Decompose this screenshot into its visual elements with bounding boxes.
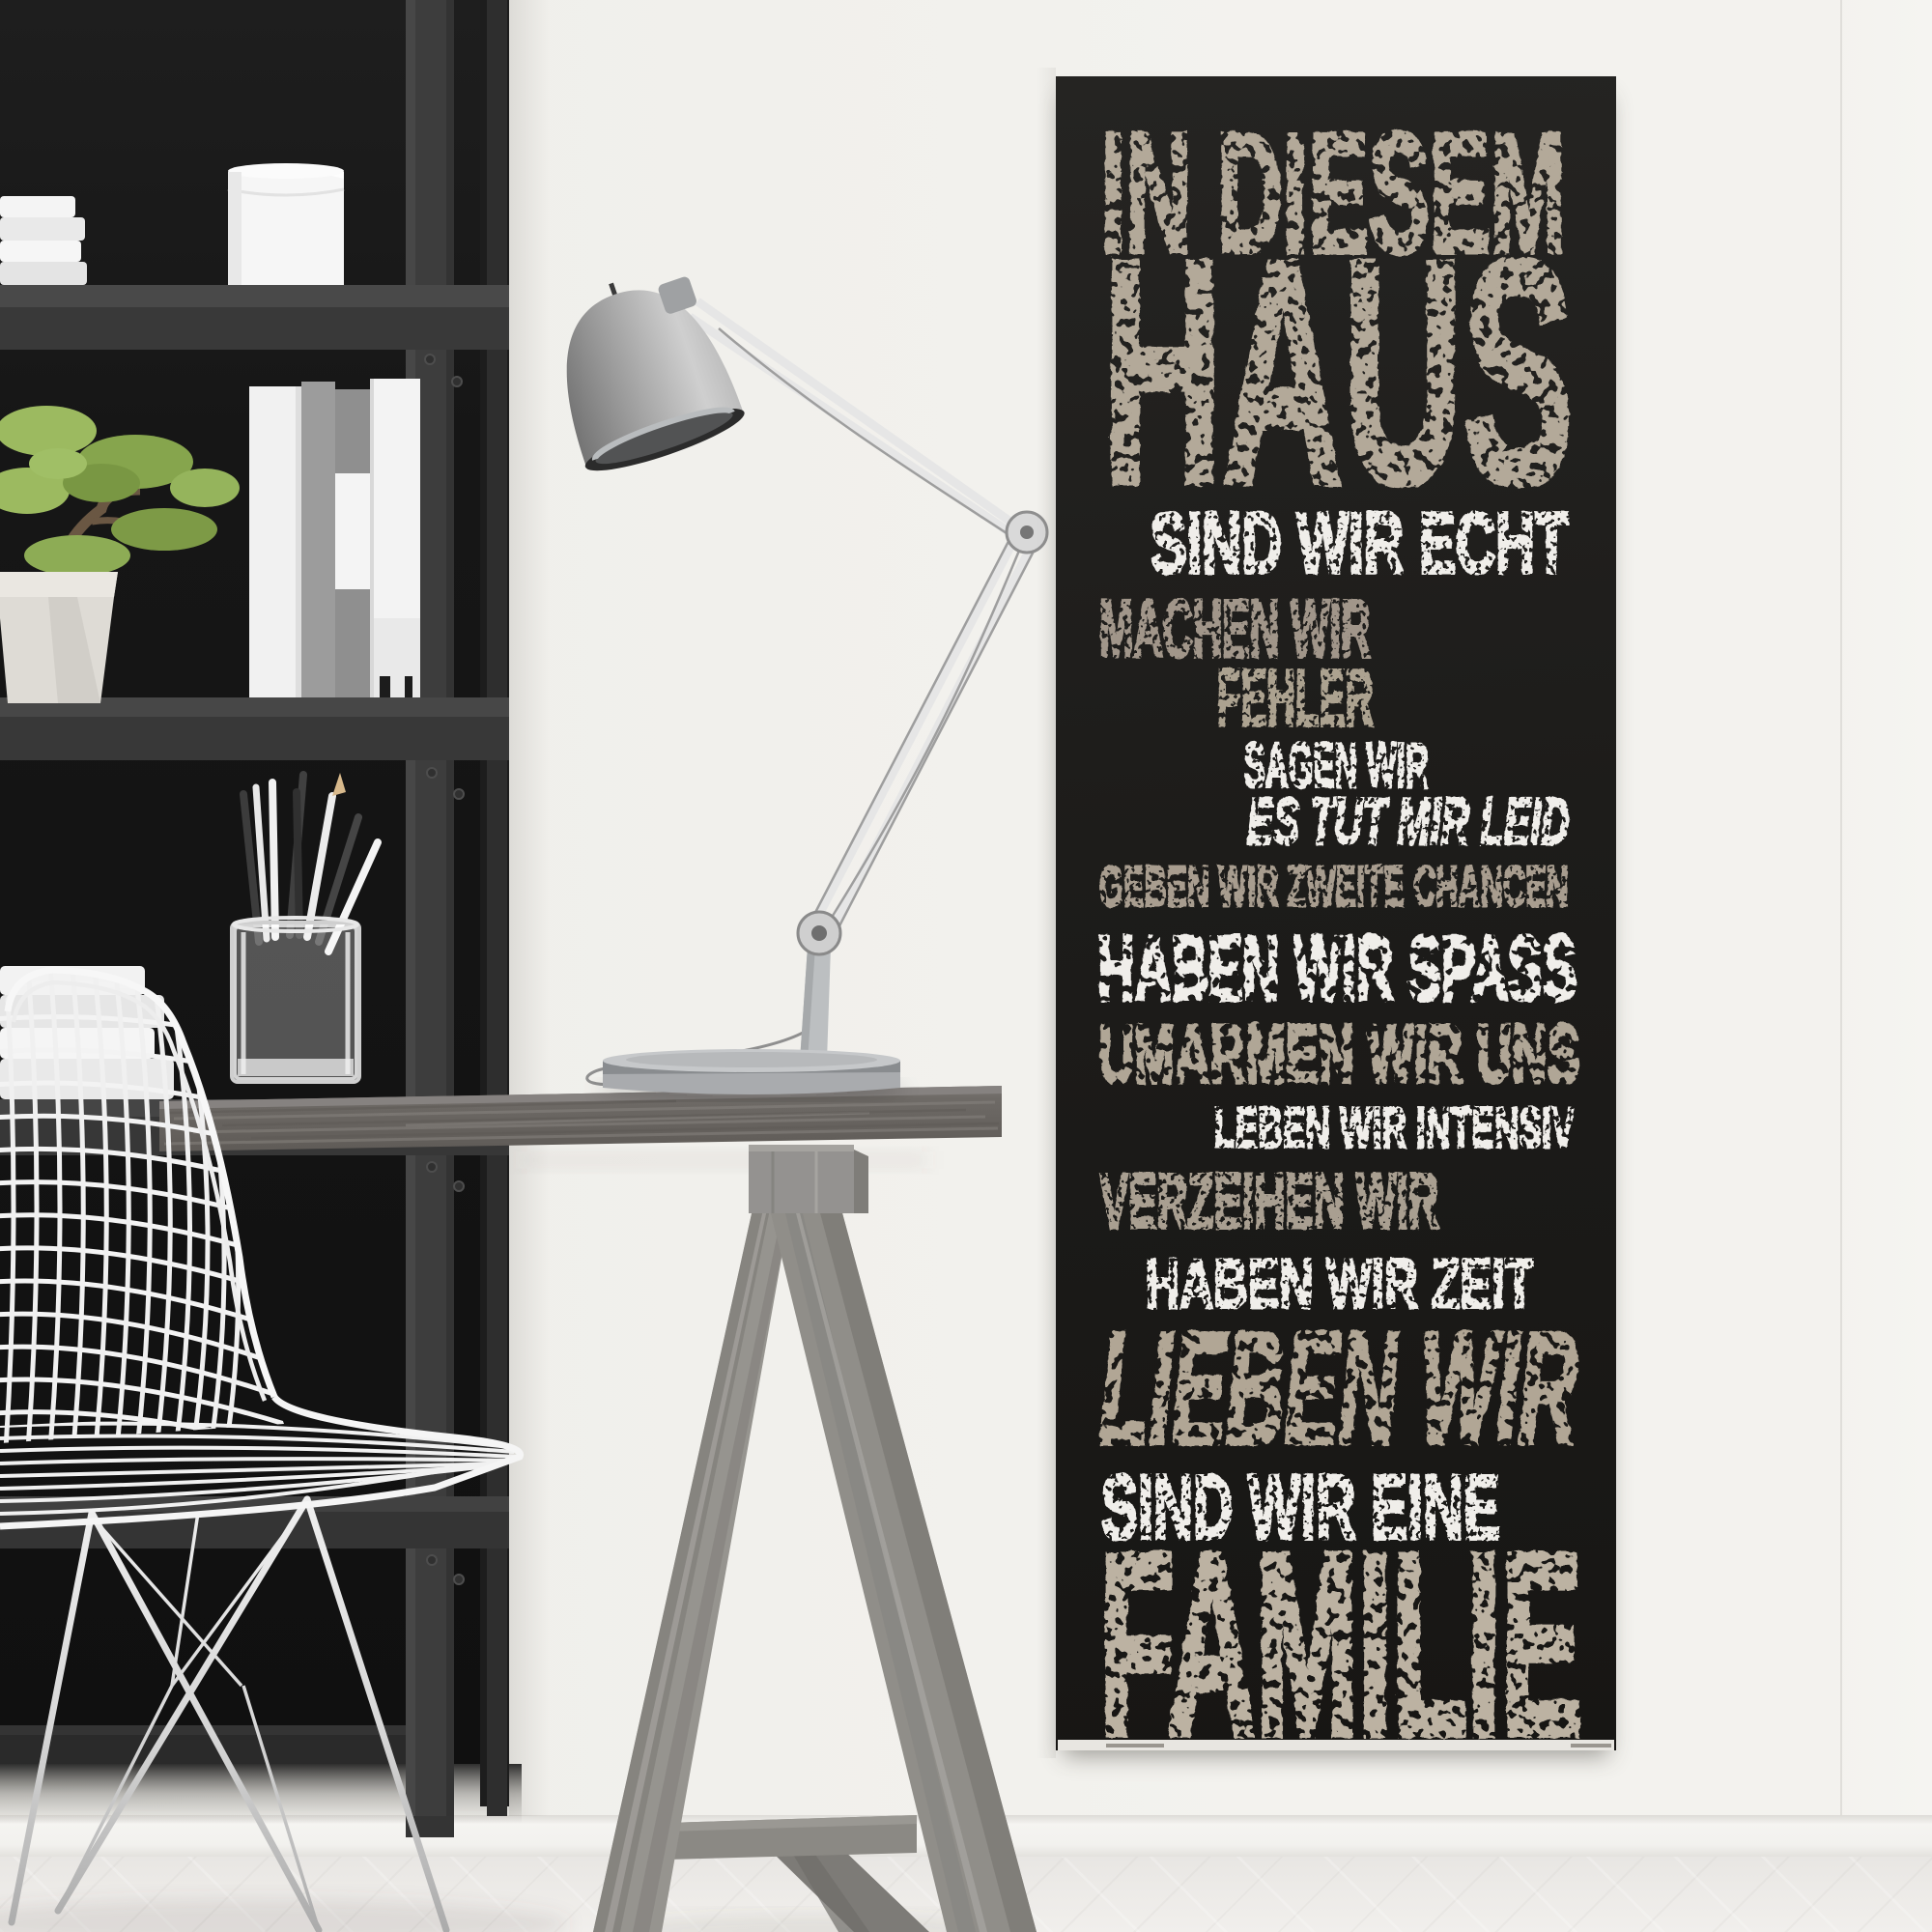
- svg-text:LIEBEN WIR: LIEBEN WIR: [1098, 1298, 1577, 1475]
- svg-text:LEBEN WIR INTENSIV: LEBEN WIR INTENSIV: [1213, 1095, 1574, 1159]
- svg-text:HABEN WIR SPASS: HABEN WIR SPASS: [1096, 916, 1576, 1019]
- svg-text:SIND WIR ECHT: SIND WIR ECHT: [1150, 494, 1568, 590]
- svg-text:GEBEN WIR ZWEITE CHANCEN: GEBEN WIR ZWEITE CHANCEN: [1098, 854, 1568, 918]
- svg-text:ES TUT MIR LEID: ES TUT MIR LEID: [1246, 783, 1569, 858]
- svg-text:FAMILIE: FAMILIE: [1098, 1500, 1581, 1750]
- svg-text:VERZEIHEN WIR: VERZEIHEN WIR: [1099, 1157, 1438, 1243]
- svg-text:UMARMEN WIR UNS: UMARMEN WIR UNS: [1097, 1008, 1578, 1099]
